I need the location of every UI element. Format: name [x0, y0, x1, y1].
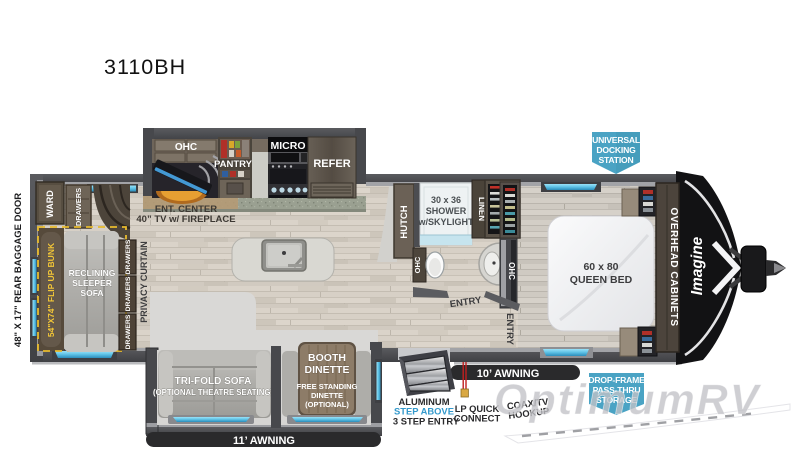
svg-text:STATION: STATION: [598, 155, 633, 165]
svg-text:REFER: REFER: [313, 158, 350, 170]
svg-text:48" X 17" REAR BAGGAGE DOOR: 48" X 17" REAR BAGGAGE DOOR: [13, 193, 24, 347]
svg-text:(OPTIONAL THEATRE SEATING): (OPTIONAL THEATRE SEATING): [153, 388, 273, 397]
svg-text:w/SKYLIGHT: w/SKYLIGHT: [417, 217, 474, 227]
svg-text:OptimumRV: OptimumRV: [494, 376, 762, 424]
svg-text:ENTRY: ENTRY: [504, 313, 515, 346]
svg-text:PRIVACY CURTAIN: PRIVACY CURTAIN: [139, 241, 149, 323]
svg-text:3 STEP ENTRY: 3 STEP ENTRY: [393, 416, 460, 427]
svg-text:30 x 36: 30 x 36: [431, 195, 461, 205]
svg-text:RECLINING: RECLINING: [69, 268, 116, 278]
svg-text:DRAWERS: DRAWERS: [125, 239, 132, 274]
svg-text:40” TV w/ FIREPLACE: 40” TV w/ FIREPLACE: [136, 214, 235, 225]
svg-text:PANTRY: PANTRY: [214, 159, 253, 170]
svg-text:DRAWERS: DRAWERS: [125, 276, 132, 311]
svg-text:SHOWER: SHOWER: [426, 206, 467, 216]
svg-text:3110BH: 3110BH: [104, 55, 186, 79]
svg-text:QUEEN BED: QUEEN BED: [570, 274, 633, 286]
svg-text:WARD: WARD: [45, 190, 55, 218]
svg-text:(OPTIONAL): (OPTIONAL): [305, 400, 349, 409]
svg-text:SOFA: SOFA: [80, 288, 103, 298]
svg-text:DRAWERS: DRAWERS: [125, 314, 132, 349]
svg-text:UNIVERSAL: UNIVERSAL: [592, 135, 640, 145]
svg-text:Imagine: Imagine: [689, 236, 706, 295]
svg-text:54"X74" FLIP UP BUNK: 54"X74" FLIP UP BUNK: [46, 242, 56, 337]
svg-text:60 x 80: 60 x 80: [583, 261, 618, 273]
svg-text:FREE STANDING: FREE STANDING: [297, 382, 358, 391]
svg-text:BOOTH: BOOTH: [308, 352, 346, 364]
svg-text:OHC: OHC: [413, 256, 422, 273]
svg-text:DINETTE: DINETTE: [305, 364, 350, 376]
svg-text:MICRO: MICRO: [271, 140, 306, 152]
svg-text:SLEEPER: SLEEPER: [72, 278, 112, 288]
svg-text:TRI-FOLD SOFA: TRI-FOLD SOFA: [175, 376, 252, 387]
svg-text:11’ AWNING: 11’ AWNING: [233, 435, 295, 447]
svg-text:DINETTE: DINETTE: [311, 391, 343, 400]
svg-text:OHC: OHC: [175, 142, 197, 153]
svg-text:OVERHEAD CABINETS: OVERHEAD CABINETS: [668, 207, 679, 326]
svg-text:DRAWERS: DRAWERS: [74, 188, 83, 226]
svg-text:OHC: OHC: [507, 262, 516, 280]
svg-text:DOCKING: DOCKING: [596, 145, 636, 155]
svg-text:HUTCH: HUTCH: [399, 205, 410, 238]
